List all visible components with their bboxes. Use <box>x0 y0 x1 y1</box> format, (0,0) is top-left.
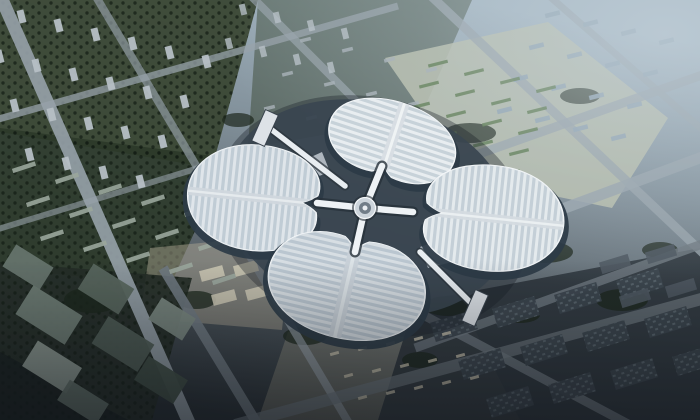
clover-exhibition-aerial-rendering <box>0 0 700 420</box>
vignette <box>0 0 700 420</box>
aerial-rendering-stage <box>0 0 700 420</box>
